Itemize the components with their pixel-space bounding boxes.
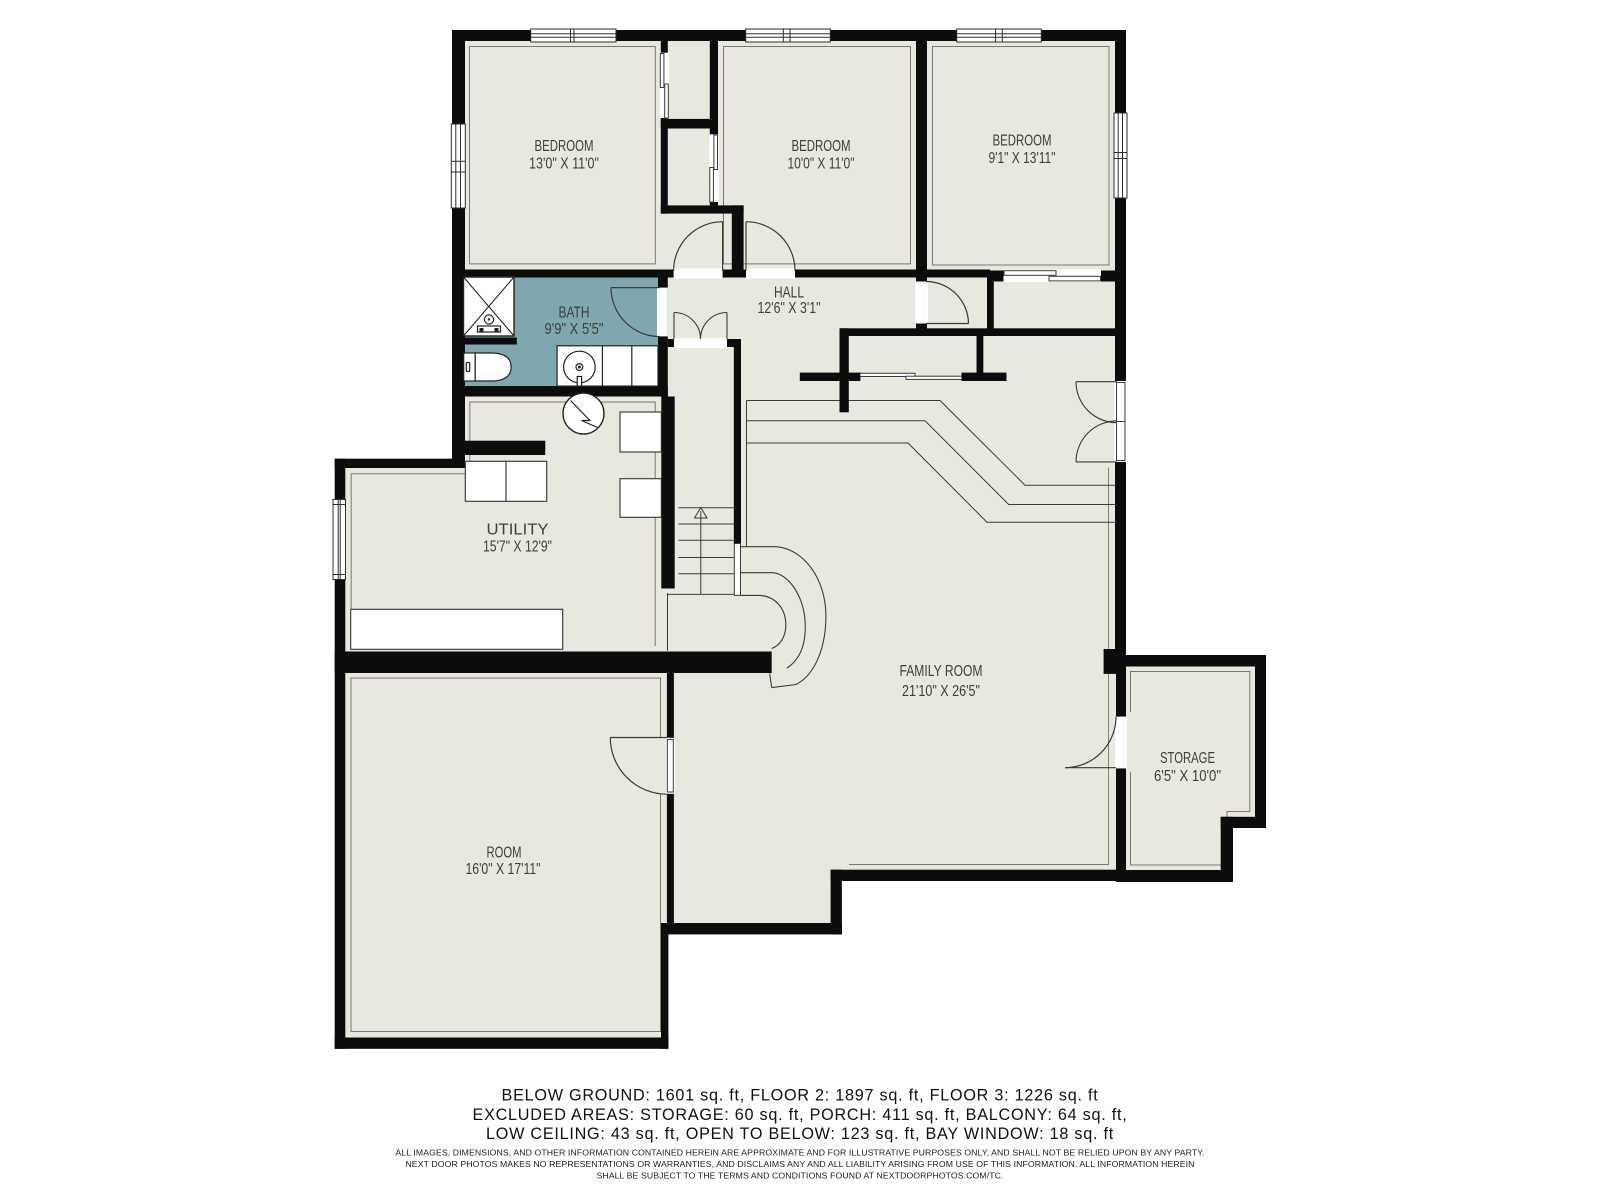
- svg-text:BELOW GROUND: 1601 sq. ft, FLO: BELOW GROUND: 1601 sq. ft, FLOOR 2: 1897…: [502, 1087, 1099, 1105]
- svg-text:LOW CEILING: 43 sq. ft, OPEN T: LOW CEILING: 43 sq. ft, OPEN TO BELOW: 1…: [486, 1125, 1114, 1143]
- svg-text:HALL: HALL: [774, 285, 804, 302]
- svg-text:9'1" X 13'11": 9'1" X 13'11": [989, 150, 1056, 167]
- svg-text:BATH: BATH: [559, 305, 590, 322]
- svg-text:21'10" X 26'5": 21'10" X 26'5": [902, 683, 980, 700]
- svg-text:15'7" X 12'9": 15'7" X 12'9": [483, 539, 552, 556]
- svg-text:NEXT DOOR PHOTOS MAKES NO REPR: NEXT DOOR PHOTOS MAKES NO REPRESENTATION…: [405, 1159, 1194, 1169]
- svg-text:12'6" X 3'1": 12'6" X 3'1": [758, 300, 821, 317]
- svg-text:ROOM: ROOM: [487, 845, 522, 862]
- svg-text:ALL IMAGES, DIMENSIONS, AND OT: ALL IMAGES, DIMENSIONS, AND OTHER INFORM…: [395, 1148, 1204, 1158]
- svg-text:16'0" X 17'11": 16'0" X 17'11": [466, 861, 541, 878]
- svg-text:UTILITY: UTILITY: [487, 522, 549, 539]
- svg-text:13'0" X 11'0": 13'0" X 11'0": [529, 156, 599, 173]
- svg-text:BEDROOM: BEDROOM: [535, 138, 594, 155]
- svg-text:10'0" X 11'0": 10'0" X 11'0": [788, 156, 855, 173]
- svg-text:SHALL BE SUBJECT TO THE TERMS: SHALL BE SUBJECT TO THE TERMS AND CONDIT…: [596, 1171, 1003, 1181]
- svg-text:6'5" X 10'0": 6'5" X 10'0": [1154, 768, 1221, 785]
- svg-text:FAMILY ROOM: FAMILY ROOM: [900, 663, 983, 680]
- svg-text:9'9" X 5'5": 9'9" X 5'5": [545, 321, 604, 338]
- svg-text:BEDROOM: BEDROOM: [993, 133, 1052, 150]
- svg-text:BEDROOM: BEDROOM: [792, 138, 851, 155]
- svg-text:EXCLUDED AREAS: STORAGE: 60 sq: EXCLUDED AREAS: STORAGE: 60 sq. ft, PORC…: [473, 1106, 1128, 1124]
- svg-text:STORAGE: STORAGE: [1160, 750, 1215, 767]
